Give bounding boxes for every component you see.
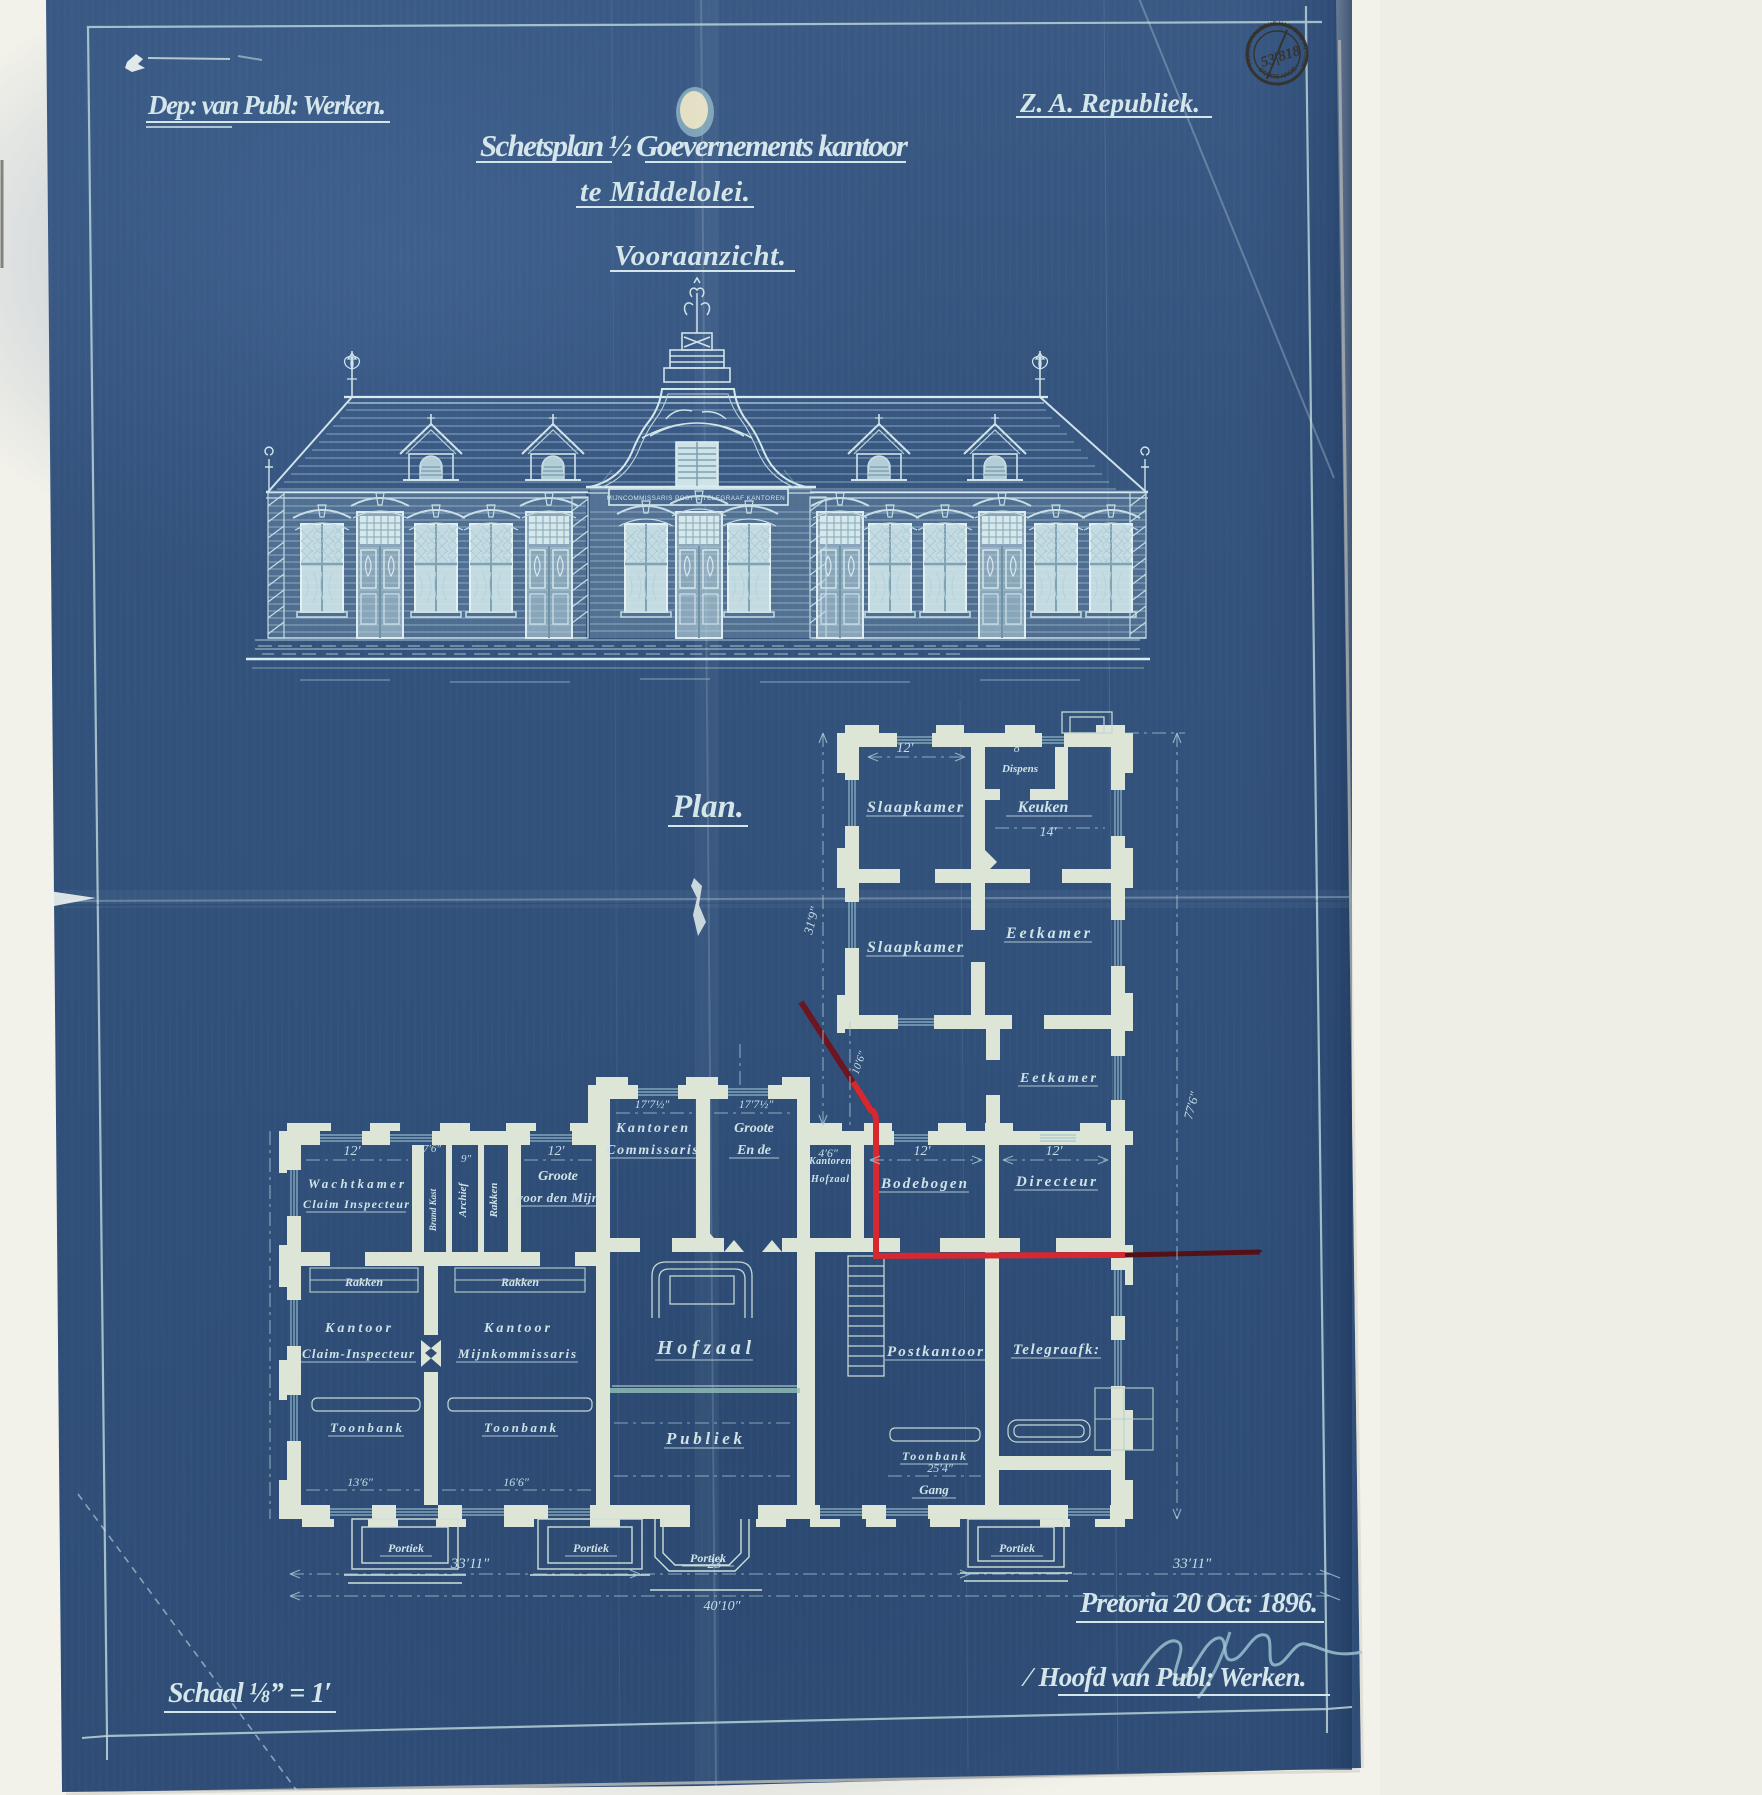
- svg-text:Rakken: Rakken: [500, 1275, 539, 1289]
- svg-text:33′11″: 33′11″: [450, 1556, 490, 1572]
- svg-text:Slaapkamer: Slaapkamer: [867, 939, 964, 956]
- svg-text:Kantoren: Kantoren: [808, 1156, 851, 1167]
- svg-text:Pretoria 20 Oct: 1896.: Pretoria 20 Oct: 1896.: [1079, 1588, 1318, 1619]
- svg-text:Kantoor: Kantoor: [483, 1321, 551, 1336]
- svg-text:14′: 14′: [1039, 825, 1057, 840]
- svg-text:17′7½″: 17′7½″: [739, 1097, 775, 1111]
- svg-text:Hofzaal: Hofzaal: [656, 1337, 751, 1359]
- svg-text:7′6″: 7′6″: [423, 1143, 441, 1155]
- svg-text:Dep: van Publ: Werken.: Dep: van Publ: Werken.: [147, 90, 386, 120]
- svg-text:Postkantoor: Postkantoor: [887, 1344, 983, 1360]
- svg-text:Portiek: Portiek: [999, 1541, 1035, 1555]
- svg-text:Commissaris: Commissaris: [606, 1143, 699, 1158]
- svg-text:Keuken: Keuken: [1017, 799, 1069, 816]
- svg-text:Archief: Archief: [457, 1182, 469, 1219]
- svg-text:Claim-Inspecteur: Claim-Inspecteur: [302, 1346, 415, 1361]
- svg-text:12′: 12′: [343, 1144, 361, 1159]
- svg-text:Rakken: Rakken: [344, 1275, 383, 1289]
- svg-text:40′10″: 40′10″: [704, 1599, 741, 1614]
- svg-text:Slaapkamer: Slaapkamer: [867, 799, 964, 816]
- svg-text:13′6″: 13′6″: [347, 1475, 374, 1489]
- svg-text:Gang: Gang: [919, 1482, 949, 1497]
- svg-text:Hofzaal: Hofzaal: [810, 1174, 849, 1185]
- svg-text:En de: En de: [736, 1143, 771, 1158]
- svg-text:12′: 12′: [1045, 1144, 1063, 1159]
- svg-text:Schetsplan ½ Goevernements kan: Schetsplan ½ Goevernements kantoor: [480, 128, 909, 163]
- svg-text:9″: 9″: [461, 1153, 472, 1165]
- svg-text:8′: 8′: [1014, 741, 1023, 755]
- svg-text:voor den Mijn: voor den Mijn: [517, 1190, 599, 1205]
- svg-text:33′11″: 33′11″: [1172, 1556, 1212, 1572]
- svg-text:Mijnkommissaris: Mijnkommissaris: [457, 1346, 576, 1361]
- svg-text:Plan.: Plan.: [671, 789, 744, 825]
- svg-text:Schaal ⅛” = 1′: Schaal ⅛” = 1′: [168, 1678, 332, 1709]
- svg-text:12′: 12′: [547, 1144, 565, 1159]
- svg-text:Portiek: Portiek: [573, 1541, 609, 1555]
- svg-text:Dispens: Dispens: [1001, 763, 1038, 775]
- svg-text:Rakken: Rakken: [488, 1183, 500, 1219]
- svg-text:12′: 12′: [896, 741, 914, 756]
- svg-text:Groote: Groote: [734, 1121, 774, 1136]
- svg-text:Groote: Groote: [538, 1169, 578, 1184]
- svg-text:Claim Inspecteur: Claim Inspecteur: [303, 1197, 409, 1211]
- svg-text:Telegraafk:: Telegraafk:: [1013, 1342, 1099, 1358]
- svg-text:25′4″: 25′4″: [927, 1461, 954, 1475]
- svg-text:17′7½″: 17′7½″: [635, 1097, 671, 1111]
- svg-text:Z. A. Republiek.: Z. A. Republiek.: [1019, 88, 1200, 118]
- svg-text:Kantoor: Kantoor: [324, 1321, 392, 1336]
- svg-text:16′6″: 16′6″: [503, 1475, 530, 1489]
- svg-text:Brand Kast: Brand Kast: [428, 1188, 438, 1232]
- svg-text:12′: 12′: [913, 1144, 931, 1159]
- svg-text:Wachtkamer: Wachtkamer: [308, 1176, 405, 1191]
- svg-text:Bodebogen: Bodebogen: [880, 1176, 967, 1192]
- svg-text:te Middelolei.: te Middelolei.: [580, 176, 750, 208]
- svg-text:⁄Hoofd van Publ: Werken.: ⁄Hoofd van Publ: Werken.: [1021, 1662, 1307, 1692]
- svg-text:Portiek: Portiek: [388, 1541, 424, 1555]
- svg-text:Portiek: Portiek: [690, 1551, 726, 1565]
- svg-text:Vooraanzicht.: Vooraanzicht.: [614, 240, 786, 272]
